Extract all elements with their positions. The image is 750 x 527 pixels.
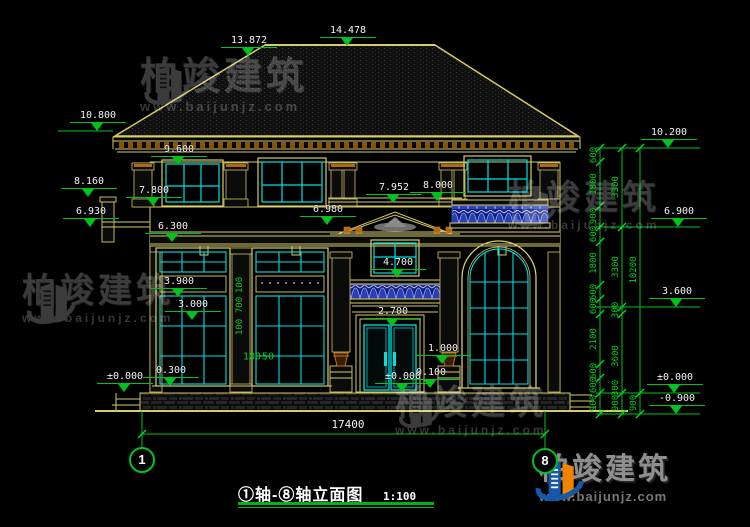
dimension-value: 50 <box>262 352 274 363</box>
title-underline-thin <box>238 507 434 508</box>
dimension-value: 3600 <box>611 345 621 367</box>
dimension-value: 1800 <box>589 173 599 195</box>
title-underline-thick <box>238 502 434 505</box>
entrance-door <box>352 306 438 392</box>
porch-balustrade <box>346 280 444 303</box>
dimension-value: 3300 <box>611 256 621 278</box>
axis-bubble-8: 8 <box>532 448 558 474</box>
dimension-value: 3300 <box>611 176 621 198</box>
dimension-value: 900 <box>589 395 599 411</box>
stone-plinth <box>95 393 628 411</box>
dimension-value: 10200 <box>629 256 639 283</box>
dimension-value: 300 <box>611 380 621 396</box>
hip-roof <box>115 45 578 136</box>
balcony-railing <box>450 200 550 228</box>
dimension-value: 600 <box>589 298 599 314</box>
dimension-value: 600 <box>589 226 599 242</box>
dimension-value: 100 <box>243 352 261 363</box>
cad-elevation-drawing: 柏竣建筑 www.baijunjz.com 柏竣建筑 www.baijunjz.… <box>0 0 750 527</box>
dimension-value: 100 <box>235 319 245 335</box>
dimension-value: 2100 <box>589 328 599 350</box>
overall-width-dimension: 17400 <box>331 418 364 431</box>
dimension-value: 600 <box>589 377 599 393</box>
dimension-value: 600 <box>589 147 599 163</box>
cornice-band <box>113 137 580 162</box>
dimension-value: 900 <box>629 395 639 411</box>
dimension-value: 700 <box>235 297 245 313</box>
arched-window <box>458 241 540 388</box>
lower-window-left2 <box>252 248 328 386</box>
dimension-value: 900 <box>611 395 621 411</box>
dimension-value: 1800 <box>589 252 599 274</box>
lower-window-left <box>156 248 230 386</box>
door-handle-left <box>384 352 387 366</box>
axis-bubble-1: 1 <box>129 447 155 473</box>
dimension-value: 100 <box>235 277 245 293</box>
door-handle-right <box>393 352 396 366</box>
dimension-value: 900 <box>589 208 599 224</box>
dimension-value: 300 <box>611 302 621 318</box>
